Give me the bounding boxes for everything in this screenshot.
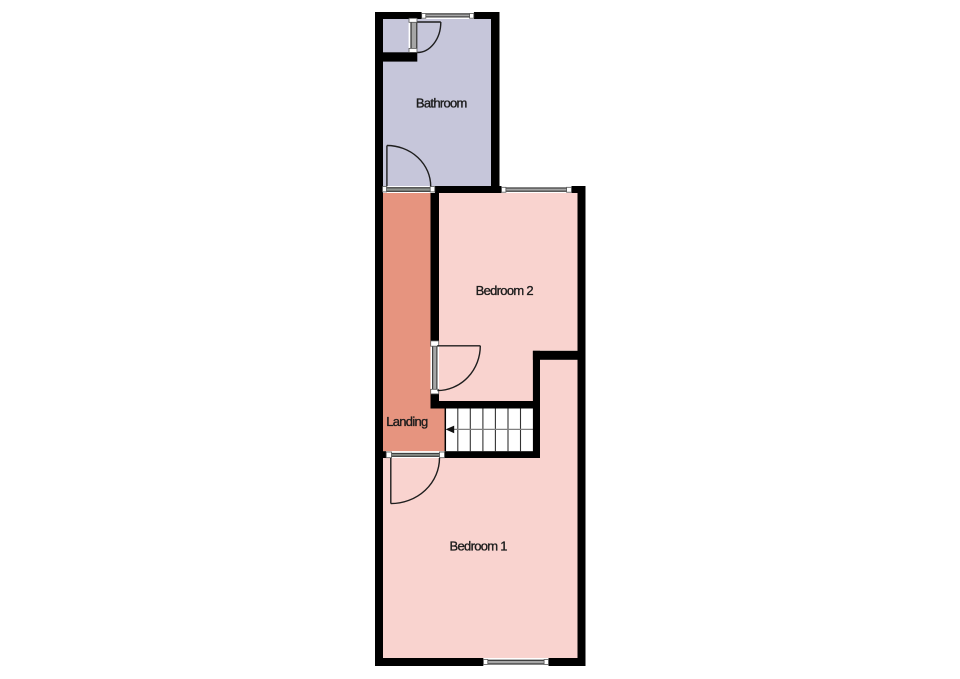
svg-text:Bedroom 1: Bedroom 1 (450, 539, 508, 554)
svg-text:Bedroom 2: Bedroom 2 (476, 283, 534, 298)
svg-text:Bathroom: Bathroom (416, 95, 467, 110)
svg-text:Landing: Landing (386, 414, 428, 429)
